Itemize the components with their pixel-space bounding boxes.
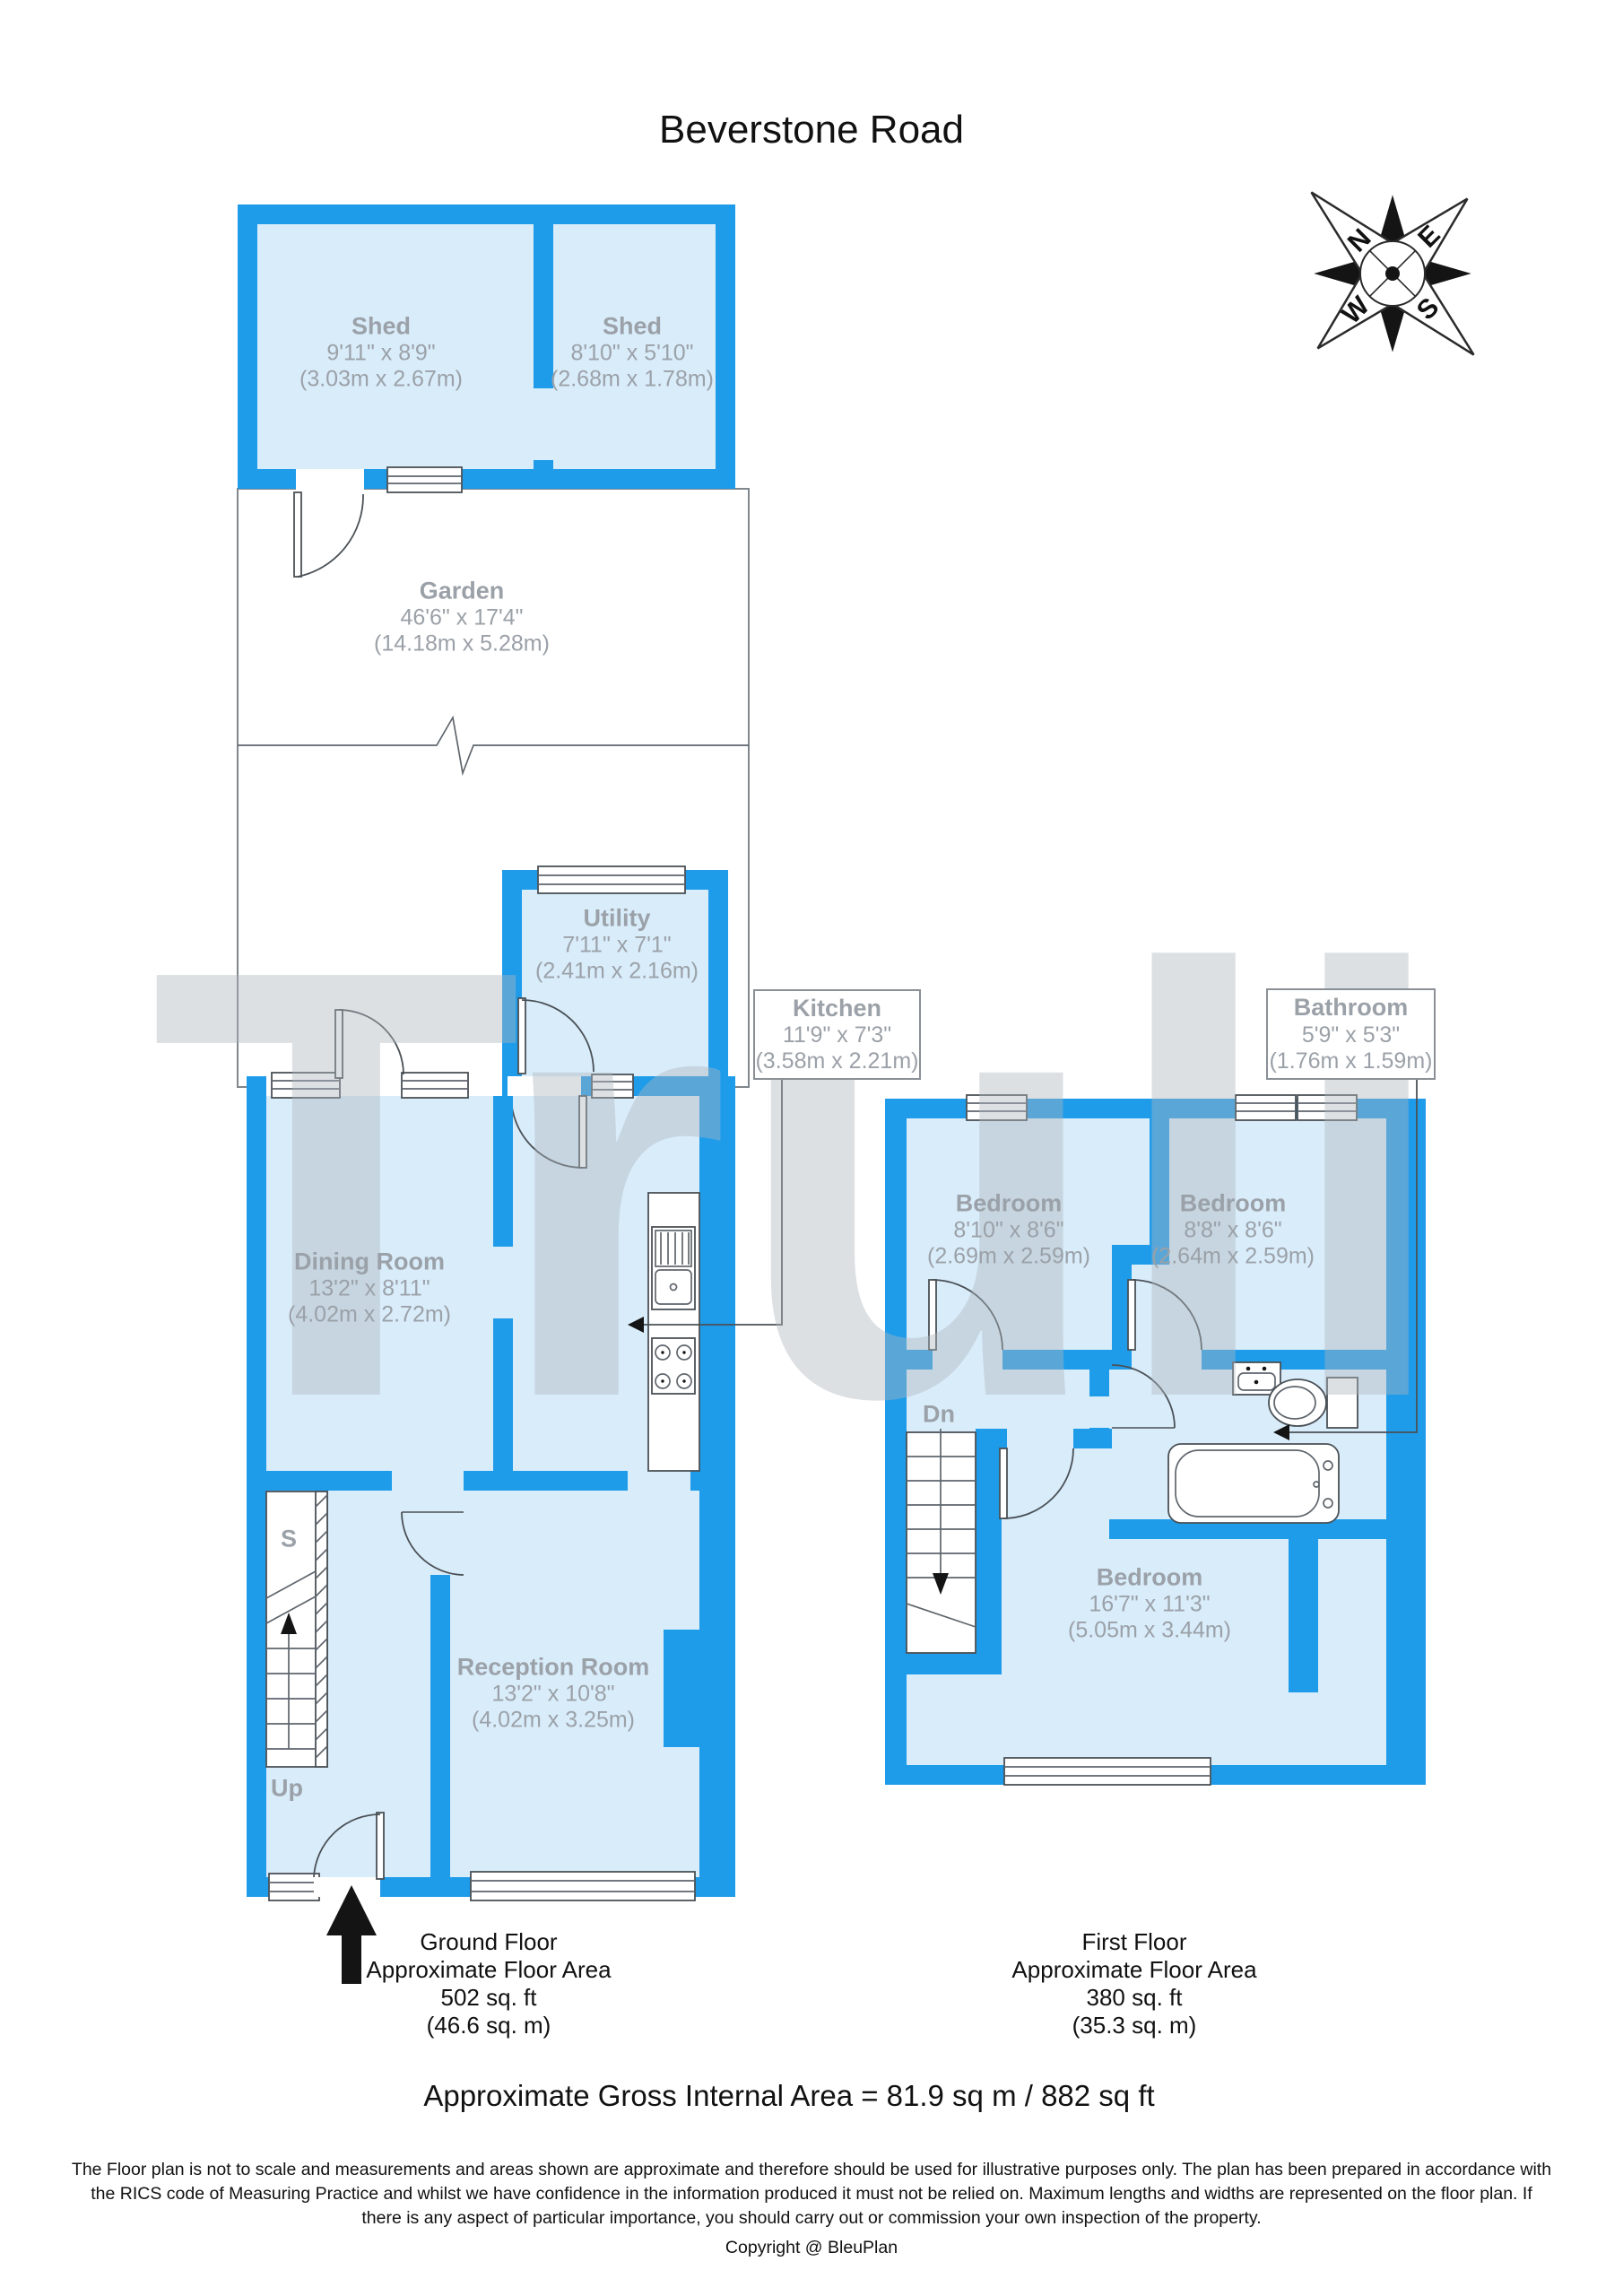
- watermark-text: Truli: [150, 843, 1455, 1525]
- kitchen-name: Kitchen: [755, 995, 919, 1022]
- chimney-breast: [664, 1630, 699, 1747]
- garden-size-ft: 46'6" x 17'4": [374, 605, 550, 631]
- shed1-size-m: (3.03m x 2.67m): [299, 367, 463, 393]
- bedroom3-size-ft: 16'7" x 11'3": [1068, 1592, 1231, 1618]
- shed-window: [387, 467, 462, 492]
- ground-floor-caption-line3: 502 sq. ft: [366, 1984, 611, 2012]
- dining-size-m: (4.02m x 2.72m): [288, 1302, 451, 1328]
- bedroom1-size-m: (2.69m x 2.59m): [927, 1244, 1090, 1270]
- wall-hall-reception: [430, 1575, 450, 1877]
- floorplan-page: .w{fill:#1E9CEA;} .r{fill:#D9ECFA;} .wh{…: [0, 0, 1623, 2296]
- ground-floor-caption-line2: Approximate Floor Area: [366, 1956, 611, 1984]
- shed2-label: Shed 8'10" x 5'10" (2.68m x 1.78m): [551, 312, 714, 392]
- shed2-name: Shed: [551, 312, 714, 340]
- bedroom3-label: Bedroom 16'7" x 11'3" (5.05m x 3.44m): [1068, 1563, 1231, 1643]
- entrance-opening: [314, 1877, 380, 1897]
- reception-size-m: (4.02m x 3.25m): [457, 1708, 650, 1734]
- bedroom1-size-ft: 8'10" x 8'6": [927, 1218, 1090, 1244]
- reception-size-ft: 13'2" x 10'8": [457, 1682, 650, 1708]
- shed1-label: Shed 9'11" x 8'9" (3.03m x 2.67m): [299, 312, 463, 392]
- stairs-down-label: Dn: [923, 1401, 955, 1429]
- disclaimer-text: The Floor plan is not to scale and measu…: [0, 2158, 1623, 2260]
- garden-name: Garden: [374, 577, 550, 604]
- kitchen-callout: Kitchen 11'9" x 7'3" (3.58m x 2.21m): [753, 989, 921, 1080]
- bedroom1-label: Bedroom 8'10" x 8'6" (2.69m x 2.59m): [927, 1189, 1090, 1269]
- utility-size-m: (2.41m x 2.16m): [535, 959, 699, 985]
- first-floor-caption: First Floor Approximate Floor Area 380 s…: [1011, 1928, 1256, 2039]
- first-floor-caption-line4: (35.3 sq. m): [1011, 2012, 1256, 2039]
- compass-icon: N E S W: [1237, 117, 1549, 430]
- hall-window: [269, 1874, 319, 1900]
- chimney-stub: [1289, 1539, 1318, 1692]
- first-floor-caption-line1: First Floor: [1011, 1928, 1256, 1956]
- copyright-text: Copyright @ BleuPlan: [0, 2236, 1623, 2260]
- garden-label: Garden 46'6" x 17'4" (14.18m x 5.28m): [374, 577, 550, 657]
- bedroom2-size-ft: 8'8" x 8'6": [1151, 1218, 1315, 1244]
- bathroom-name: Bathroom: [1268, 994, 1434, 1022]
- utility-label: Utility 7'11" x 7'1" (2.41m x 2.16m): [535, 904, 699, 984]
- ground-floor-caption-line1: Ground Floor: [366, 1928, 611, 1956]
- shed2-size-ft: 8'10" x 5'10": [551, 341, 714, 367]
- bathroom-size-m: (1.76m x 1.59m): [1268, 1048, 1434, 1074]
- disclaimer-line2: the RICS code of Measuring Practice and …: [0, 2182, 1623, 2206]
- disclaimer-line3: there is any aspect of particular import…: [0, 2206, 1623, 2231]
- reception-window: [471, 1872, 695, 1900]
- bedroom3-window: [1004, 1758, 1211, 1785]
- bedroom3-name: Bedroom: [1068, 1563, 1231, 1591]
- garden-size-m: (14.18m x 5.28m): [374, 631, 550, 657]
- disclaimer-line1: The Floor plan is not to scale and measu…: [0, 2158, 1623, 2182]
- kitchen-size-ft: 11'9" x 7'3": [755, 1022, 919, 1048]
- first-floor-caption-line2: Approximate Floor Area: [1011, 1956, 1256, 1984]
- page-title: Beverstone Road: [659, 108, 964, 152]
- bathroom-size-ft: 5'9" x 5'3": [1268, 1022, 1434, 1048]
- dining-size-ft: 13'2" x 8'11": [288, 1276, 451, 1302]
- floorplan-canvas: .w{fill:#1E9CEA;} .r{fill:#D9ECFA;} .wh{…: [0, 0, 1623, 2296]
- bedroom1-name: Bedroom: [927, 1189, 1090, 1217]
- shed1-name: Shed: [299, 312, 463, 340]
- bedroom2-name: Bedroom: [1151, 1189, 1315, 1217]
- reception-label: Reception Room 13'2" x 10'8" (4.02m x 3.…: [457, 1653, 650, 1733]
- gross-area-text: Approximate Gross Internal Area = 81.9 s…: [423, 2079, 1154, 2113]
- ground-floor-caption-line4: (46.6 sq. m): [366, 2012, 611, 2039]
- bedroom2-size-m: (2.64m x 2.59m): [1151, 1244, 1315, 1270]
- shed1-size-ft: 9'11" x 8'9": [299, 341, 463, 367]
- bedroom2-label: Bedroom 8'8" x 8'6" (2.64m x 2.59m): [1151, 1189, 1315, 1269]
- ground-floor-caption: Ground Floor Approximate Floor Area 502 …: [366, 1928, 611, 2039]
- dining-label: Dining Room 13'2" x 8'11" (4.02m x 2.72m…: [288, 1248, 451, 1327]
- stairs-up-label: Up: [271, 1775, 303, 1803]
- first-floor-caption-line3: 380 sq. ft: [1011, 1984, 1256, 2012]
- bathroom-callout: Bathroom 5'9" x 5'3" (1.76m x 1.59m): [1266, 988, 1436, 1080]
- dining-name: Dining Room: [288, 1248, 451, 1275]
- reception-name: Reception Room: [457, 1653, 650, 1681]
- stairs-storage-label: S: [281, 1526, 297, 1553]
- kitchen-size-m: (3.58m x 2.21m): [755, 1048, 919, 1074]
- shed2-size-m: (2.68m x 1.78m): [551, 367, 714, 393]
- bedroom3-size-m: (5.05m x 3.44m): [1068, 1618, 1231, 1644]
- shed-door-opening: [296, 469, 364, 491]
- utility-name: Utility: [535, 904, 699, 932]
- utility-size-ft: 7'11" x 7'1": [535, 933, 699, 959]
